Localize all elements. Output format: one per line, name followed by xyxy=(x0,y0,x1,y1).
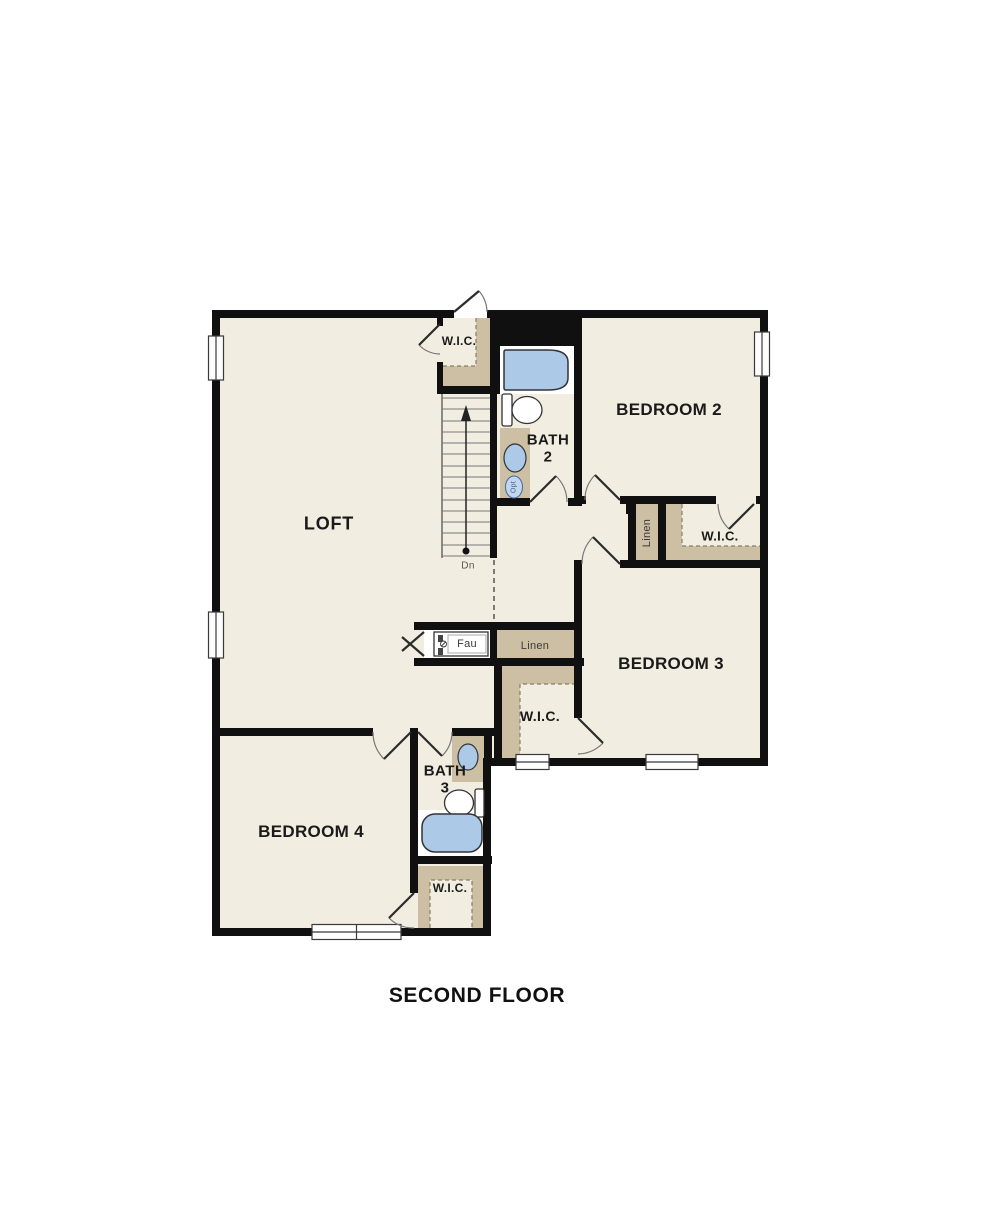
stairs-down-label: Dn xyxy=(461,561,474,572)
optional-sink-label: Opt xyxy=(511,481,518,493)
door-wic-top-exterior xyxy=(454,291,487,312)
room-label-bedroom2: BEDROOM 2 xyxy=(616,400,722,420)
closet-label-wic-top: W.I.C. xyxy=(442,334,476,348)
bathtub-icon-bath3 xyxy=(422,814,482,852)
room-label-bath2-line2: 2 xyxy=(544,449,553,466)
room-label-loft: LOFT xyxy=(304,514,354,535)
window-loft-upper xyxy=(209,336,224,380)
room-label-bath3-line2: 3 xyxy=(441,780,450,797)
closet-label-linen-upper: Linen xyxy=(641,519,653,547)
sink-icon-bath2 xyxy=(504,444,526,472)
window-bedroom2 xyxy=(755,332,770,376)
room-label-bedroom3: BEDROOM 3 xyxy=(618,654,724,674)
floor-plan-drawing xyxy=(0,0,1000,1223)
room-label-bedroom4: BEDROOM 4 xyxy=(258,822,364,842)
closet-label-linen-hall: Linen xyxy=(521,640,549,652)
window-loft-lower xyxy=(209,612,224,658)
floor-plan-canvas: LOFT BEDROOM 2 BEDROOM 3 BEDROOM 4 BATH … xyxy=(0,0,1000,1223)
wic-top-wall-opening xyxy=(454,310,487,318)
closet-label-wic-bedroom2: W.I.C. xyxy=(701,529,738,544)
room-label-bath3-line1: BATH xyxy=(424,763,467,780)
window-bedroom4 xyxy=(312,925,401,940)
page-title: SECOND FLOOR xyxy=(389,984,565,1008)
closet-label-wic-bedroom4: W.I.C. xyxy=(433,881,467,895)
window-bedroom3 xyxy=(646,755,698,770)
chase-void xyxy=(490,310,582,346)
closet-label-wic-bedroom3: W.I.C. xyxy=(520,708,560,724)
bathtub-icon-bath2 xyxy=(504,350,568,390)
closet-label-fau: Fau xyxy=(457,638,477,650)
window-wic-bedroom3 xyxy=(516,755,549,770)
toilet-icon-bath2 xyxy=(502,394,542,426)
room-label-bath2-line1: BATH xyxy=(527,432,570,449)
toilet-icon-bath3 xyxy=(445,789,485,817)
